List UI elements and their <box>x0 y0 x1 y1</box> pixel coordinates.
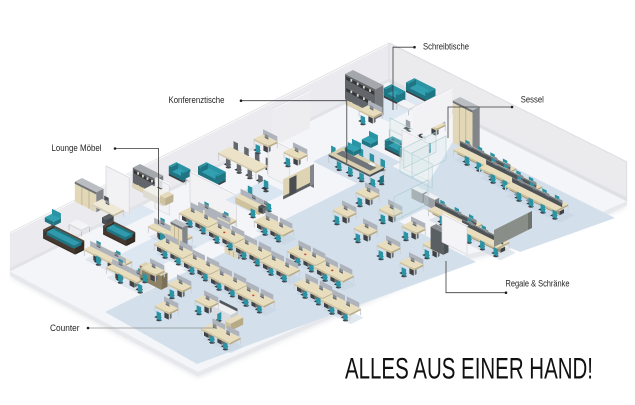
svg-text:Konferenztische: Konferenztische <box>169 95 225 105</box>
svg-text:Sessel: Sessel <box>521 94 544 104</box>
svg-text:Counter: Counter <box>50 323 80 333</box>
svg-text:Regale & Schränke: Regale & Schränke <box>506 279 570 289</box>
svg-text:Schreibtische: Schreibtische <box>423 42 469 52</box>
svg-text:Lounge Möbel: Lounge Möbel <box>52 143 102 153</box>
svg-text:ALLES AUS EINER HAND!: ALLES AUS EINER HAND! <box>345 353 593 386</box>
